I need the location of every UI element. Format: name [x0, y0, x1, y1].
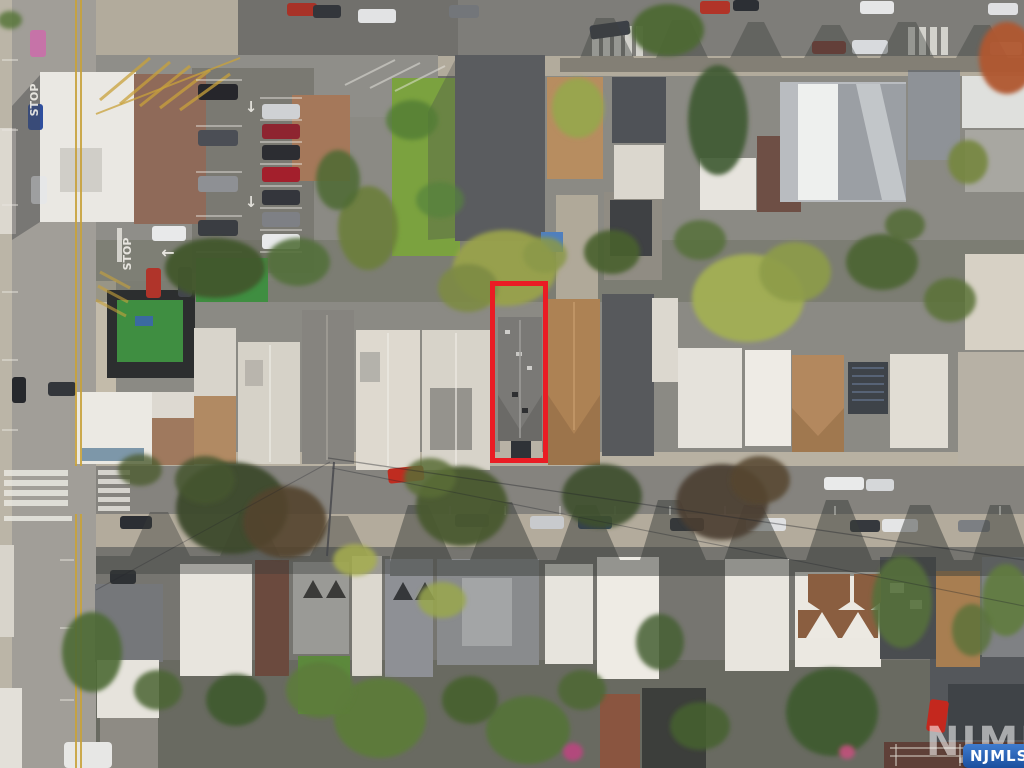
crosswalk-bar	[98, 497, 130, 502]
car	[152, 226, 186, 241]
car	[530, 516, 564, 529]
car	[198, 220, 238, 236]
tree	[523, 237, 567, 273]
turf-item-blue	[135, 316, 153, 326]
car	[287, 3, 317, 16]
crosswalk-bar	[98, 488, 130, 493]
street-tree	[730, 456, 790, 504]
stop-marking-street: STOP	[121, 238, 134, 271]
car	[262, 104, 300, 119]
tree	[286, 662, 354, 718]
large-dark-roof-building	[455, 55, 545, 241]
street-tree	[404, 458, 456, 498]
b-gray-hip-ridge	[462, 578, 512, 646]
crosswalk-bar	[4, 470, 68, 476]
white-flat-roof-2	[745, 350, 791, 446]
stop-marking-avenue: STOP	[28, 84, 41, 117]
car	[198, 176, 238, 192]
nw-corner-sidewalk	[96, 0, 242, 56]
dark-structure-e	[602, 294, 654, 456]
house-ne-hip-roof	[908, 70, 960, 160]
tree	[924, 278, 976, 322]
car	[313, 5, 341, 18]
tree	[584, 230, 640, 274]
tree	[558, 670, 606, 710]
car-pink	[30, 30, 46, 57]
car-van	[824, 477, 864, 490]
crosswalk-bar	[98, 506, 130, 511]
tree	[266, 238, 330, 286]
crosswalk-bar	[930, 27, 937, 55]
car	[12, 377, 26, 403]
tree	[952, 604, 992, 656]
car	[860, 1, 894, 14]
car	[262, 124, 300, 139]
roof-a-streak	[245, 360, 263, 386]
crosswalk-bar	[4, 490, 68, 496]
roof-c-gray-patch	[430, 388, 472, 450]
white-flat-roof-1	[678, 348, 742, 448]
b-white-roof-3	[545, 564, 593, 664]
b-brown-gable-roof	[600, 694, 640, 768]
car	[262, 212, 300, 227]
tree-yellow	[333, 544, 377, 576]
arrow-marking-down: ↓	[245, 98, 258, 116]
avenue-west-sidewalk	[0, 0, 12, 768]
tree	[442, 676, 498, 724]
tree	[885, 209, 925, 241]
sw-edge-building-2	[0, 688, 22, 768]
street-tree	[118, 454, 162, 486]
car	[198, 130, 238, 146]
white-streaked-roof-e	[890, 354, 948, 448]
tree-yellow	[552, 78, 604, 138]
tree	[846, 234, 918, 290]
pink-umbrella	[839, 745, 855, 759]
tree	[688, 65, 748, 175]
arrow-marking-left: ←	[161, 243, 174, 262]
tree	[165, 238, 265, 298]
tree	[316, 150, 360, 210]
car	[449, 5, 479, 18]
tree-shadow	[416, 182, 464, 218]
pink-umbrella	[563, 743, 583, 761]
crosswalk-bar	[941, 27, 948, 55]
tree	[786, 668, 878, 756]
apartment-roof-white	[40, 72, 136, 222]
tree	[872, 556, 932, 648]
njmls-watermark-badge: NJMLS	[963, 744, 1024, 768]
crosswalk-bar	[4, 500, 68, 506]
car	[700, 1, 730, 14]
njmls-badge-label: NJMLS	[970, 747, 1024, 765]
tree-shadow	[386, 100, 438, 140]
tree	[670, 702, 730, 750]
tree	[948, 140, 988, 184]
car	[866, 479, 894, 491]
brown-house-w-gable	[152, 392, 194, 418]
car	[733, 0, 759, 11]
tree	[62, 612, 122, 692]
tree	[636, 614, 684, 670]
gray-building-e	[958, 352, 1024, 464]
house-ne-dark-roof	[612, 77, 666, 143]
car	[48, 382, 76, 396]
gray-hip-roof-long	[302, 310, 354, 464]
property-highlight-box	[490, 281, 548, 463]
turf-building-green	[117, 300, 183, 362]
crosswalk-bar	[4, 480, 68, 486]
sw-edge-building	[0, 545, 14, 637]
white-truck	[64, 742, 112, 768]
tree	[206, 674, 266, 726]
car-van	[358, 9, 396, 23]
b-white-flat-big	[180, 564, 252, 676]
car	[262, 167, 300, 182]
street-tree	[243, 486, 327, 558]
b-gray-gable-2	[385, 559, 433, 677]
roof-b-streak	[360, 352, 380, 382]
b-gray-gable-1	[293, 562, 349, 654]
car	[146, 268, 161, 298]
street-tree	[175, 456, 235, 504]
b-darkred-building	[255, 560, 289, 676]
car	[988, 3, 1018, 15]
solar-panel-roof	[848, 362, 888, 414]
long-building-w-tan	[194, 396, 236, 464]
aerial-photo: STOPSTOP←↓↓ NJMLS NJMLS	[0, 0, 1024, 768]
tree	[759, 242, 831, 302]
arrow-marking-down: ↓	[245, 193, 258, 211]
street-tree	[562, 464, 642, 528]
house-ne-white-roof	[614, 145, 664, 199]
car	[262, 190, 300, 205]
tree	[486, 696, 570, 764]
car	[262, 145, 300, 160]
tree	[134, 670, 182, 710]
white-narrow-building	[652, 298, 678, 382]
car	[852, 40, 888, 54]
tree	[632, 4, 704, 56]
stop-bar	[4, 516, 72, 521]
tree-yellow	[418, 582, 466, 618]
tree	[674, 220, 726, 260]
big-roof-ne-white-slope	[798, 84, 838, 200]
tree	[438, 264, 498, 312]
apartment-brick-facade	[134, 74, 206, 224]
